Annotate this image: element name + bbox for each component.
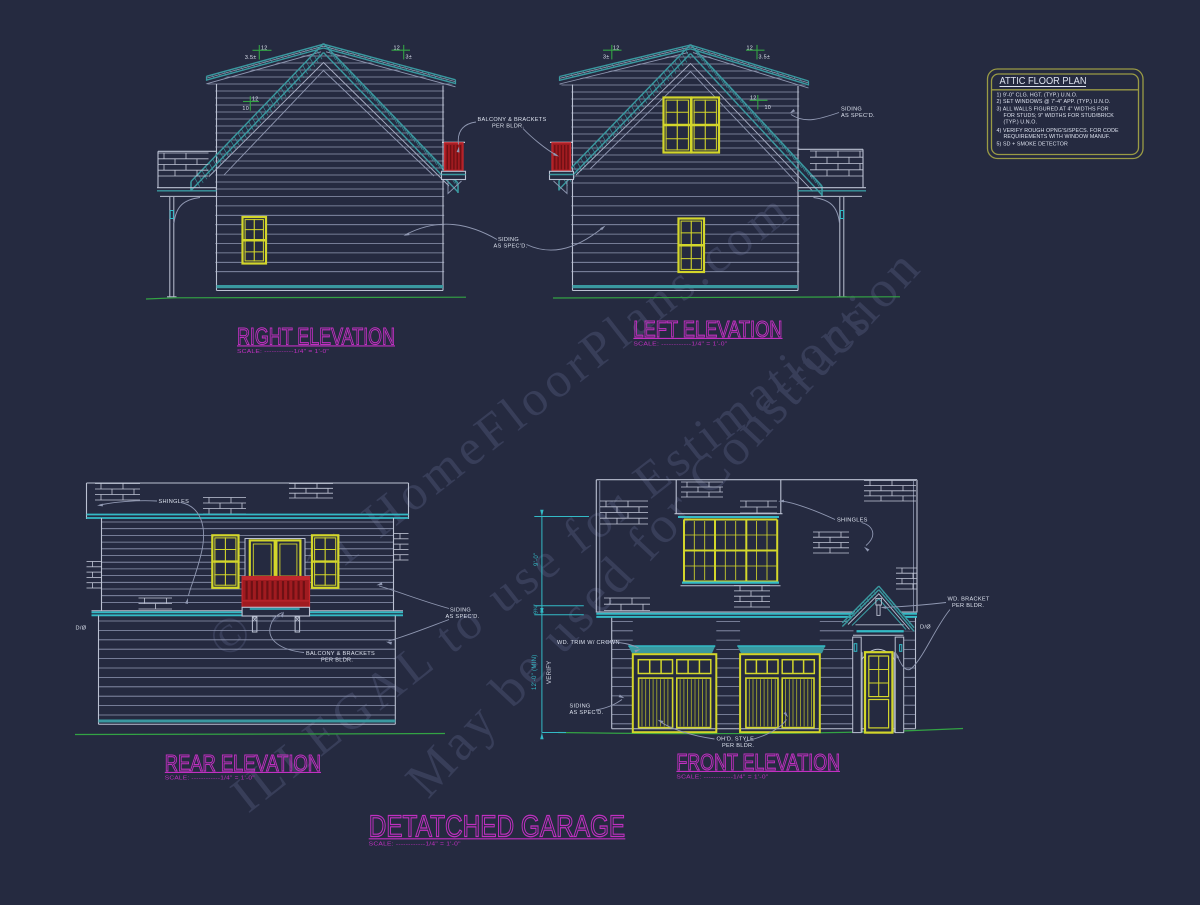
svg-text:5) SD + SMOKE DETECTOR: 5) SD + SMOKE DETECTOR [997, 142, 1068, 148]
svg-text:AS SPEC'D.: AS SPEC'D. [446, 614, 480, 620]
svg-text:ATTIC FLOOR PLAN: ATTIC FLOOR PLAN [1000, 75, 1087, 87]
svg-text:SCALE: ------------1/4" = 1'-0: SCALE: ------------1/4" = 1'-0" [633, 342, 727, 348]
svg-text:10: 10 [242, 106, 249, 112]
svg-text:SCALE: ------------1/4" = 1'-0: SCALE: ------------1/4" = 1'-0" [676, 775, 768, 781]
svg-text:10: 10 [765, 105, 772, 111]
svg-text:SIDING: SIDING [498, 237, 519, 243]
svg-text:3) ALL WALLS FIGURED AT 4" WID: 3) ALL WALLS FIGURED AT 4" WIDTHS FOR [997, 107, 1109, 113]
svg-text:SCALE: ------------1/4" = 1'-0: SCALE: ------------1/4" = 1'-0" [237, 349, 329, 355]
svg-text:FOR STUDS; 9" WIDTHS FOR STUD/: FOR STUDS; 9" WIDTHS FOR STUD/BRICK [1004, 113, 1115, 119]
svg-text:12: 12 [261, 45, 268, 51]
svg-text:3±: 3± [603, 55, 610, 61]
svg-text:12: 12 [613, 45, 620, 51]
svg-text:AS SPEC'D.: AS SPEC'D. [841, 113, 875, 119]
svg-text:D/Ø: D/Ø [920, 625, 931, 631]
svg-text:12'-0" (MIN): 12'-0" (MIN) [532, 654, 538, 690]
svg-text:PER BLDR.: PER BLDR. [952, 603, 984, 609]
svg-text:SCALE: ------------1/4" = 1'-0: SCALE: ------------1/4" = 1'-0" [165, 776, 255, 782]
svg-text:12: 12 [747, 45, 754, 51]
svg-text:12: 12 [252, 97, 259, 103]
svg-text:PER BLDR.: PER BLDR. [321, 658, 353, 664]
svg-text:AS SPEC'D.: AS SPEC'D. [570, 710, 604, 716]
svg-text:PER BLDR.: PER BLDR. [492, 124, 524, 130]
svg-text:12: 12 [750, 95, 757, 101]
svg-text:1) 9'-0" CLG. HGT. (TYP.) U.N: 1) 9'-0" CLG. HGT. (TYP.) U.N.O. [997, 92, 1078, 98]
svg-text:3.5±: 3.5± [759, 55, 771, 61]
svg-text:AS SPEC'D.: AS SPEC'D. [494, 243, 528, 249]
svg-text:SIDING: SIDING [841, 107, 862, 113]
svg-text:3±: 3± [406, 55, 413, 61]
svg-text:WD. TRIM W/ CROWN: WD. TRIM W/ CROWN [557, 640, 620, 646]
svg-text:RIGHT ELEVATION: RIGHT ELEVATION [237, 324, 395, 351]
svg-text:9¾": 9¾" [534, 604, 540, 614]
svg-text:9'-0": 9'-0" [534, 553, 540, 566]
svg-text:BALCONY & BRACKETS: BALCONY & BRACKETS [306, 651, 375, 657]
svg-text:SIDING: SIDING [570, 704, 591, 710]
svg-text:2) SET WINDOWS @ 7'-4" APP. (T: 2) SET WINDOWS @ 7'-4" APP. (TYP.) U.N.O… [997, 99, 1111, 105]
svg-text:VERIFY: VERIFY [547, 661, 553, 684]
svg-text:SCALE: ------------1/4" = 1'-0: SCALE: ------------1/4" = 1'-0" [369, 842, 461, 848]
svg-text:SHINGLES: SHINGLES [159, 499, 190, 505]
svg-text:3.5±: 3.5± [245, 55, 257, 61]
svg-text:OH'D. STYLE: OH'D. STYLE [717, 737, 755, 743]
svg-text:SIDING: SIDING [450, 608, 471, 614]
svg-text:REQUIREMENTS WITH WINDOW MANUF: REQUIREMENTS WITH WINDOW MANUF. [1004, 134, 1111, 140]
svg-text:WD. BRACKET: WD. BRACKET [948, 597, 990, 603]
svg-text:12: 12 [394, 45, 401, 51]
svg-text:4) VERIFY ROUGH OPNG'S/SPECS.: 4) VERIFY ROUGH OPNG'S/SPECS. FOR CODE [997, 128, 1120, 134]
svg-text:(TYP.) U.N.O.: (TYP.) U.N.O. [1004, 120, 1038, 126]
svg-text:D/Ø: D/Ø [76, 626, 87, 632]
svg-text:BALCONY & BRACKETS: BALCONY & BRACKETS [478, 117, 547, 123]
